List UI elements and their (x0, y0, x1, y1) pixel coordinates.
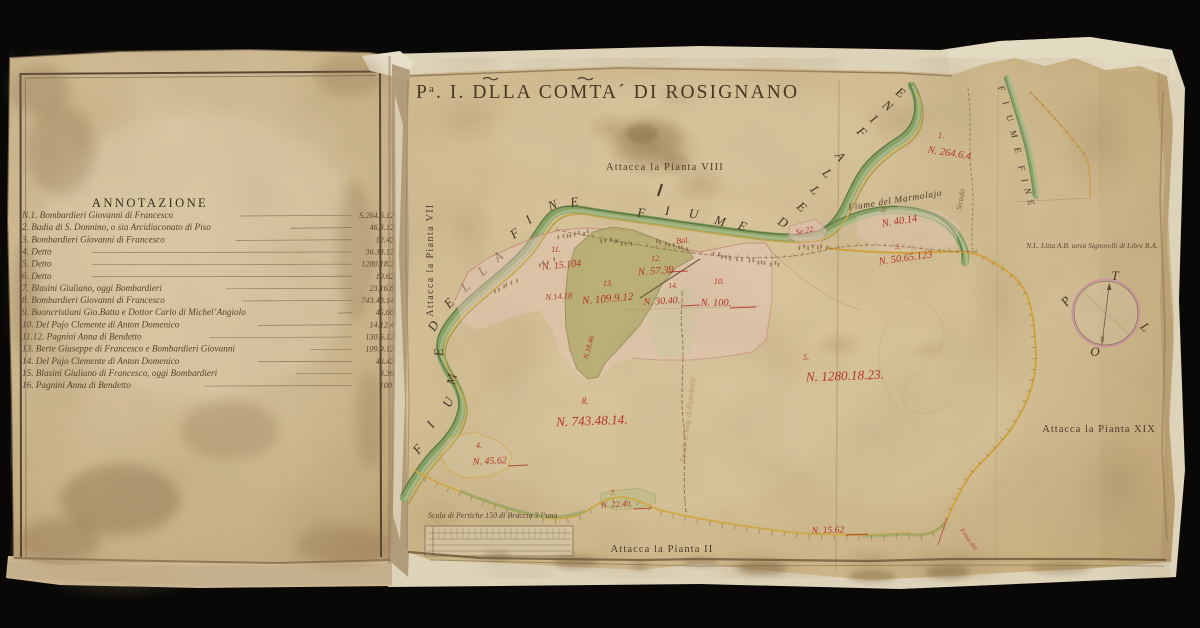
svg-text:ANNOTAZIONE: ANNOTAZIONE (92, 196, 208, 210)
svg-text:12.42: 12.42 (376, 235, 394, 244)
svg-text:N.14.18: N.14.18 (544, 290, 573, 302)
svg-text:45.60: 45.60 (376, 308, 394, 317)
svg-text:12.: 12. (651, 254, 661, 263)
svg-text:N. 30.40.: N. 30.40. (642, 295, 680, 308)
svg-text:3.: 3. (894, 242, 901, 251)
svg-text:N.1. Bombardieri Giovanni di F: N.1. Bombardieri Giovanni di Francesco (21, 210, 174, 220)
svg-text:1.: 1. (938, 130, 944, 140)
svg-text:11.12. Pagnini Anna di Bendett: 11.12. Pagnini Anna di Bendetto (22, 332, 142, 342)
svg-text:10.62: 10.62 (376, 272, 394, 281)
svg-text:11.: 11. (551, 245, 560, 254)
svg-text:2.: 2. (881, 205, 887, 214)
svg-text:Pa. I. DLLA COMTA´ DI ROSIGNAN: Pa. I. DLLA COMTA´ DI ROSIGNANO (416, 82, 799, 103)
svg-text:2. Badia di S. Donnino, o sia: 2. Badia di S. Donnino, o sia Arcidiacon… (22, 222, 211, 232)
svg-text:7. Blasini Giuliano, oggi Bomb: 7. Blasini Giuliano, oggi Bombardieri (22, 283, 162, 293)
svg-text:4.: 4. (476, 441, 482, 450)
svg-text:Bal.: Bal. (676, 235, 690, 245)
svg-text:9. Buoncristiani Gio.Batta e D: 9. Buoncristiani Gio.Batta e Dottor Carl… (22, 307, 246, 317)
svg-text:46.42: 46.42 (376, 357, 394, 366)
svg-text:8.: 8. (582, 396, 589, 406)
svg-text:15. Blasini Giuliano di France: 15. Blasini Giuliano di Francesco, oggi … (22, 368, 218, 378)
svg-text:N. 743.48.14.: N. 743.48.14. (555, 412, 628, 430)
svg-text:Scala di Pertiche 150 di Bracc: Scala di Pertiche 150 di Braccia 3 l’una (428, 511, 558, 520)
svg-text:T: T (1111, 268, 1119, 283)
svg-text:Attacca la Pianta VIII: Attacca la Pianta VIII (606, 162, 724, 173)
svg-text:10. Del Pajo Clemente di Anton: 10. Del Pajo Clemente di Anton Domenico (22, 319, 180, 329)
svg-text:7.: 7. (610, 489, 616, 497)
svg-text:N. 100.: N. 100. (700, 298, 732, 309)
svg-text:Attacca la Pianta II: Attacca la Pianta II (611, 544, 714, 555)
svg-text:N. 22.40.: N. 22.40. (600, 498, 633, 510)
svg-text:14.: 14. (668, 281, 678, 290)
svg-text:5.: 5. (803, 352, 809, 362)
svg-text:16. Pagnini Anna di Bendetto: 16. Pagnini Anna di Bendetto (22, 380, 131, 390)
svg-text:Attacca la Pianta XIX: Attacca la Pianta XIX (1042, 424, 1155, 435)
svg-text:Attacca la Pianta VII: Attacca la Pianta VII (425, 203, 436, 316)
svg-text:3. Bombardieri Giovanni di Fra: 3. Bombardieri Giovanni di Francesco (21, 234, 165, 244)
svg-text:10.: 10. (714, 276, 725, 286)
svg-text:N. 1280.18.23.: N. 1280.18.23. (805, 367, 885, 385)
svg-text:13.: 13. (603, 279, 613, 288)
svg-text:N. 45.62: N. 45.62 (472, 455, 508, 468)
svg-text:13. Berte Giuseppe di Francesc: 13. Berte Giuseppe di Francesco e Bombar… (22, 344, 235, 354)
svg-text:14. Del Pajo Clemente di Anton: 14. Del Pajo Clemente di Anton Domenico (22, 356, 180, 366)
svg-text:O: O (1090, 344, 1100, 359)
svg-text:8. Bombardieri Giovanni di Fra: 8. Bombardieri Giovanni di Francesco (22, 295, 165, 305)
svg-text:N.L. Litta A.B. uova Signorell: N.L. Litta A.B. uova Signorelli di Libre… (1025, 241, 1158, 250)
svg-text:N. 15.62: N. 15.62 (811, 525, 845, 536)
